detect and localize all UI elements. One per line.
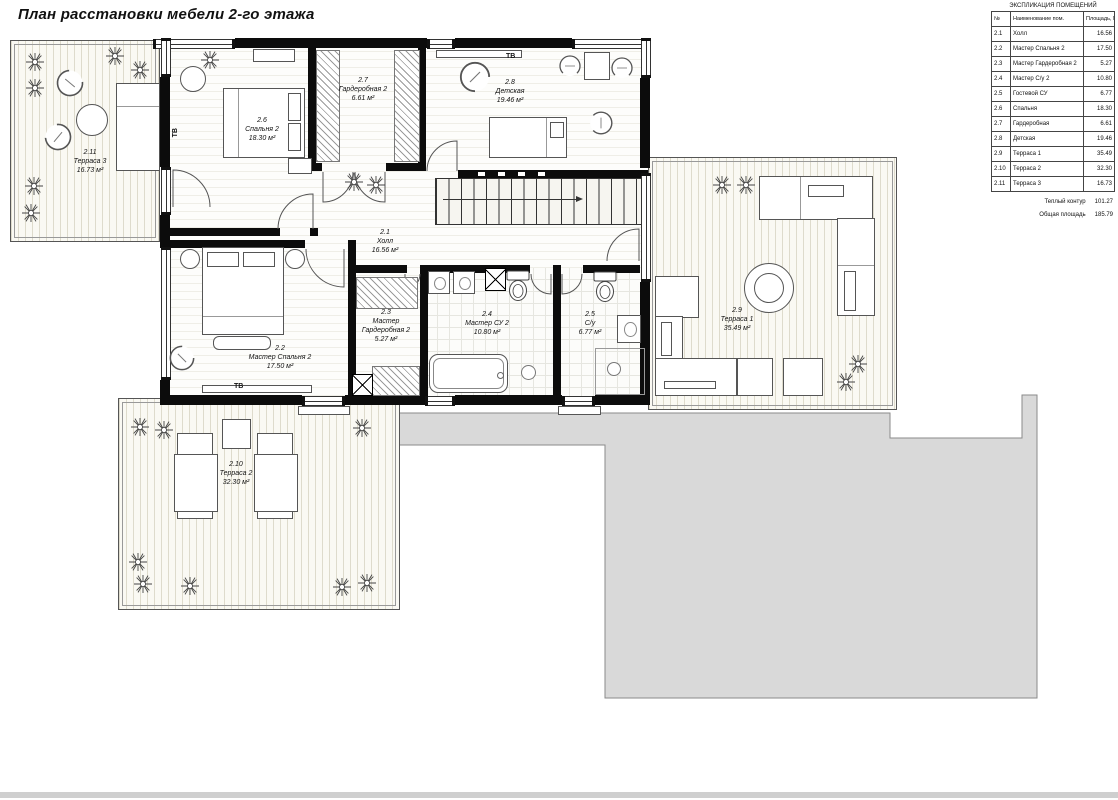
floor-drain [607, 362, 621, 376]
table-row: 2.10Терраса 232.30 [992, 162, 1115, 177]
stair-railing [478, 172, 485, 176]
sun-lounger [177, 433, 213, 519]
bathtub [429, 354, 508, 393]
table-cell: 2.10 [992, 162, 1011, 177]
window-sill [298, 406, 350, 415]
room-label-2-6: 2.6Спальня 218.30 м² [245, 116, 279, 143]
wardrobe [356, 277, 418, 309]
terrace-cabinet [655, 276, 699, 318]
wardrobe [316, 50, 340, 162]
plant-icon [848, 354, 868, 374]
wall [356, 265, 407, 273]
wall [235, 38, 427, 48]
stair-railing [538, 172, 545, 176]
room-label-2-1: 2.1Холл16.56 м² [372, 228, 399, 255]
table-cell: 2.3 [992, 57, 1011, 72]
chair-icon [588, 110, 614, 136]
table-cell: 2.2 [992, 42, 1011, 57]
terrace-bench [737, 358, 773, 396]
plant-icon [133, 574, 153, 594]
window [161, 167, 171, 215]
table-cell: 35.49 [1084, 147, 1115, 162]
plant-icon [712, 175, 732, 195]
terrace-bench [783, 358, 823, 396]
wall [553, 265, 561, 405]
table-row: 2.1Холл16.56 [992, 27, 1115, 42]
door-arc [530, 273, 552, 295]
col-header-area: Площадь, М2 [1084, 12, 1115, 27]
table-row: 2.6Спальня18.30 [992, 102, 1115, 117]
explication-title: ЭКСПЛИКАЦИЯ ПОМЕЩЕНИЙ [991, 3, 1115, 9]
page-bottom-border [0, 792, 1118, 798]
door-arc [606, 228, 640, 262]
wall [386, 163, 426, 171]
tv-label: ТВ [234, 383, 243, 390]
plant-icon [130, 417, 150, 437]
table-cell: 2.9 [992, 147, 1011, 162]
dresser [288, 158, 312, 174]
window [641, 38, 651, 78]
room-label-2-11: 2.11Терраса 316.73 м² [74, 148, 107, 175]
room-label-2-2: 2.2Мастер Спальня 217.50 м² [249, 344, 312, 371]
stair-railing [498, 172, 505, 176]
table-row: 2.3Мастер Гардеробная 25.27 [992, 57, 1115, 72]
nightstand [180, 249, 200, 269]
window [427, 39, 455, 49]
tv-label: ТВ [506, 53, 515, 60]
desk-chair [610, 56, 634, 80]
wall [420, 265, 428, 405]
table-row: 2.4Мастер С/у 210.80 [992, 72, 1115, 87]
plant-icon [366, 175, 386, 195]
plant-icon [25, 52, 45, 72]
plant-icon [736, 175, 756, 195]
table-cell: 10.80 [1084, 72, 1115, 87]
door-arc [305, 248, 345, 288]
table-header-row: № Наименование пом. Площадь, М2 [992, 12, 1115, 27]
tv-label: ТВ [172, 128, 179, 137]
table-cell: Мастер Спальня 2 [1011, 42, 1084, 57]
explication-table: № Наименование пом. Площадь, М2 2.1Холл1… [991, 11, 1115, 192]
sink [453, 271, 475, 294]
round-table [76, 104, 108, 136]
table-cell: 16.73 [1084, 177, 1115, 192]
plant-icon [344, 172, 364, 192]
toilet [593, 272, 617, 304]
table-row: 2.9Терраса 135.49 [992, 147, 1115, 162]
wall [160, 395, 302, 405]
window-sill [558, 406, 601, 415]
wardrobe [372, 366, 420, 396]
terrace-door-window [641, 173, 651, 282]
room-label-2-9: 2.9Терраса 135.49 м² [721, 306, 754, 333]
table-cell: 2.6 [992, 102, 1011, 117]
table-cell: Мастер Гардеробная 2 [1011, 57, 1084, 72]
table-cell: 2.11 [992, 177, 1011, 192]
room-label-2-5: 2.5С/у6.77 м² [579, 310, 602, 337]
window [562, 396, 595, 406]
page-title: План расстановки мебели 2-го этажа [18, 6, 315, 23]
plant-icon [21, 203, 41, 223]
table-row: 2.11Терраса 316.73 [992, 177, 1115, 192]
total-area: Общая площадь185.79 [991, 212, 1115, 218]
table-cell: 5.27 [1084, 57, 1115, 72]
room-label-2-3: 2.3Мастер Гардеробная 25.27 м² [352, 308, 420, 344]
wall [458, 170, 648, 178]
table-cell: 6.61 [1084, 117, 1115, 132]
plant-icon [836, 372, 856, 392]
wall [345, 395, 425, 405]
wall [640, 78, 650, 168]
door-arc [172, 170, 210, 208]
shaft [352, 374, 373, 396]
table-cell: Терраса 2 [1011, 162, 1084, 177]
plant-icon [24, 176, 44, 196]
plant-icon [352, 418, 372, 438]
stair-arrow-head [576, 196, 583, 202]
plant-icon [180, 576, 200, 596]
door-arc [426, 140, 458, 172]
wall [160, 228, 280, 236]
door-arc [561, 273, 583, 295]
col-header-num: № [992, 12, 1011, 27]
table-cell: Терраса 3 [1011, 177, 1084, 192]
warm-contour-total: Теплый контур101.27 [991, 199, 1115, 205]
room-label-2-8: 2.8Детская19.46 м² [496, 78, 525, 105]
sink [428, 271, 450, 294]
tv-console [202, 385, 312, 393]
sun-lounger [116, 83, 160, 171]
table-row: 2.7Гардеробная6.61 [992, 117, 1115, 132]
explication-panel: ЭКСПЛИКАЦИЯ ПОМЕЩЕНИЙ № Наименование пом… [991, 3, 1115, 218]
table-cell: 18.30 [1084, 102, 1115, 117]
window [572, 39, 650, 49]
floor-drain [521, 365, 536, 380]
table-cell: 16.56 [1084, 27, 1115, 42]
plant-icon [25, 78, 45, 98]
table-cell: 19.46 [1084, 132, 1115, 147]
nightstand [285, 249, 305, 269]
plant-icon [357, 573, 377, 593]
table-cell: Детская [1011, 132, 1084, 147]
col-header-name: Наименование пом. [1011, 12, 1084, 27]
plant-icon [105, 46, 125, 66]
staircase [435, 178, 650, 225]
terrace-bench [655, 358, 737, 396]
table-cell: 32.30 [1084, 162, 1115, 177]
table-cell: Терраса 1 [1011, 147, 1084, 162]
room-label-2-4: 2.4Мастер СУ 210.80 м² [465, 310, 509, 337]
table-cell: 6.77 [1084, 87, 1115, 102]
window [161, 38, 171, 77]
plant-icon [130, 60, 150, 80]
sink [617, 315, 641, 343]
stair-railing [518, 172, 525, 176]
table-cell: 2.5 [992, 87, 1011, 102]
table-row: 2.5Гостевой СУ6.77 [992, 87, 1115, 102]
wardrobe [394, 50, 420, 162]
stair-direction-arrow [443, 199, 576, 200]
table-cell: 2.8 [992, 132, 1011, 147]
plant-icon [154, 420, 174, 440]
wall [160, 77, 170, 167]
room-label-2-7: 2.7Гардеробная 26.61 м² [339, 76, 387, 103]
terrace-cabinet [655, 316, 683, 360]
bed [202, 247, 284, 335]
wall [455, 38, 572, 48]
table-cell: 17.50 [1084, 42, 1115, 57]
table-cell: 2.1 [992, 27, 1011, 42]
toilet [506, 271, 530, 303]
table-row: 2.2Мастер Спальня 217.50 [992, 42, 1115, 57]
table-row: 2.8Детская19.46 [992, 132, 1115, 147]
window [425, 396, 455, 406]
dresser [253, 49, 295, 62]
wall [308, 48, 316, 163]
sofa [759, 176, 873, 220]
room-label-2-10: 2.10Терраса 232.30 м² [220, 460, 253, 487]
floor-plan-canvas: План расстановки мебели 2-го этажа [0, 0, 1118, 800]
table-cell: 2.7 [992, 117, 1011, 132]
desk [584, 52, 610, 80]
sun-lounger [257, 433, 293, 519]
side-table [222, 419, 251, 449]
window [302, 396, 345, 406]
table-cell: 2.4 [992, 72, 1011, 87]
roof-area [390, 390, 1050, 705]
plant-icon [200, 50, 220, 70]
table-cell: Гардеробная [1011, 117, 1084, 132]
door-arc [278, 194, 314, 230]
fire-table-inner [754, 273, 784, 303]
bed [489, 117, 567, 158]
table-cell: Холл [1011, 27, 1084, 42]
plant-icon [128, 552, 148, 572]
wall [455, 395, 562, 405]
table-cell: Спальня [1011, 102, 1084, 117]
wall [595, 395, 650, 405]
plant-icon [332, 577, 352, 597]
sofa [837, 218, 875, 316]
table-cell: Гостевой СУ [1011, 87, 1084, 102]
desk-chair [558, 54, 582, 78]
table-cell: Мастер С/у 2 [1011, 72, 1084, 87]
shaft [485, 268, 506, 291]
